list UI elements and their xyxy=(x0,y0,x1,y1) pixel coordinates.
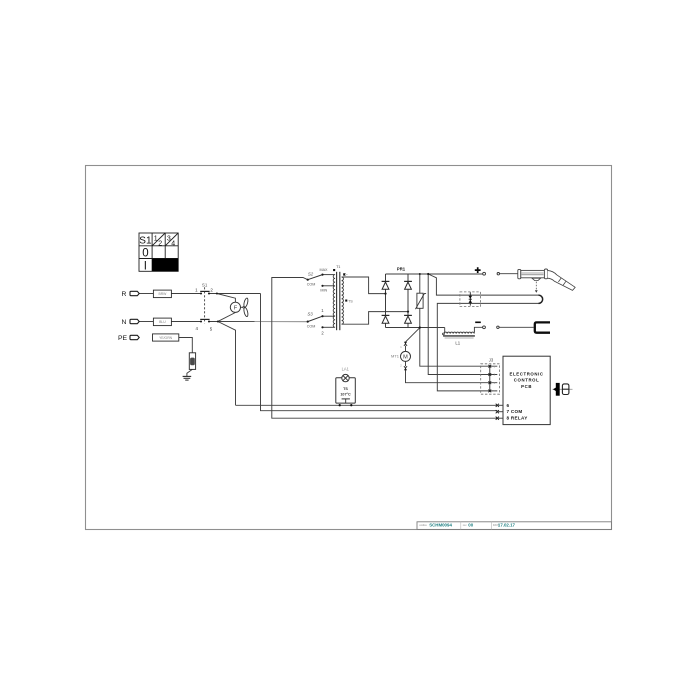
svg-text:CONTROL: CONTROL xyxy=(514,378,540,383)
svg-text:S1: S1 xyxy=(139,236,152,247)
svg-text:4: 4 xyxy=(171,240,175,247)
svg-text:ELECTRONIC: ELECTRONIC xyxy=(510,371,544,376)
svg-text:MIN: MIN xyxy=(320,289,327,293)
svg-text:I: I xyxy=(144,260,147,272)
svg-text:M: M xyxy=(403,355,408,361)
svg-text:MAX: MAX xyxy=(320,268,329,272)
svg-text:T1: T1 xyxy=(336,265,340,269)
svg-text:L1: L1 xyxy=(455,341,460,346)
svg-text:LA1: LA1 xyxy=(342,366,350,371)
svg-text:J3: J3 xyxy=(489,357,494,362)
svg-text:rev.: rev. xyxy=(463,523,467,527)
svg-text:R: R xyxy=(122,291,127,298)
svg-text:6: 6 xyxy=(507,403,510,408)
svg-text:YE/GRN: YE/GRN xyxy=(159,336,173,340)
svg-text:MT1: MT1 xyxy=(391,354,400,359)
svg-text:17.02.17: 17.02.17 xyxy=(498,523,516,528)
svg-text:S1: S1 xyxy=(202,282,208,287)
svg-text:N: N xyxy=(122,319,127,326)
svg-text:0: 0 xyxy=(142,248,148,260)
svg-text:1: 1 xyxy=(154,236,158,243)
svg-text:SCHM0094: SCHM0094 xyxy=(429,523,452,528)
svg-text:PE: PE xyxy=(118,335,128,342)
svg-text:00: 00 xyxy=(468,523,473,528)
svg-text:F: F xyxy=(234,305,238,311)
svg-text:7 COM: 7 COM xyxy=(507,409,523,414)
svg-text:PR1: PR1 xyxy=(397,267,406,272)
svg-text:2: 2 xyxy=(158,240,162,247)
svg-text:107°C: 107°C xyxy=(340,392,351,396)
svg-text:COM: COM xyxy=(307,325,316,329)
svg-text:TS: TS xyxy=(348,299,353,303)
svg-text:8 RELAY: 8 RELAY xyxy=(507,416,528,421)
svg-text:S3: S3 xyxy=(307,312,313,317)
svg-text:BLU: BLU xyxy=(159,320,166,324)
svg-text:COM: COM xyxy=(307,283,316,287)
svg-text:codice: codice xyxy=(419,523,427,527)
svg-text:TS: TS xyxy=(343,387,348,391)
svg-text:BRW: BRW xyxy=(158,292,167,296)
svg-text:PCB: PCB xyxy=(521,384,532,389)
svg-text:3: 3 xyxy=(167,236,171,243)
svg-text:S2: S2 xyxy=(308,271,314,276)
